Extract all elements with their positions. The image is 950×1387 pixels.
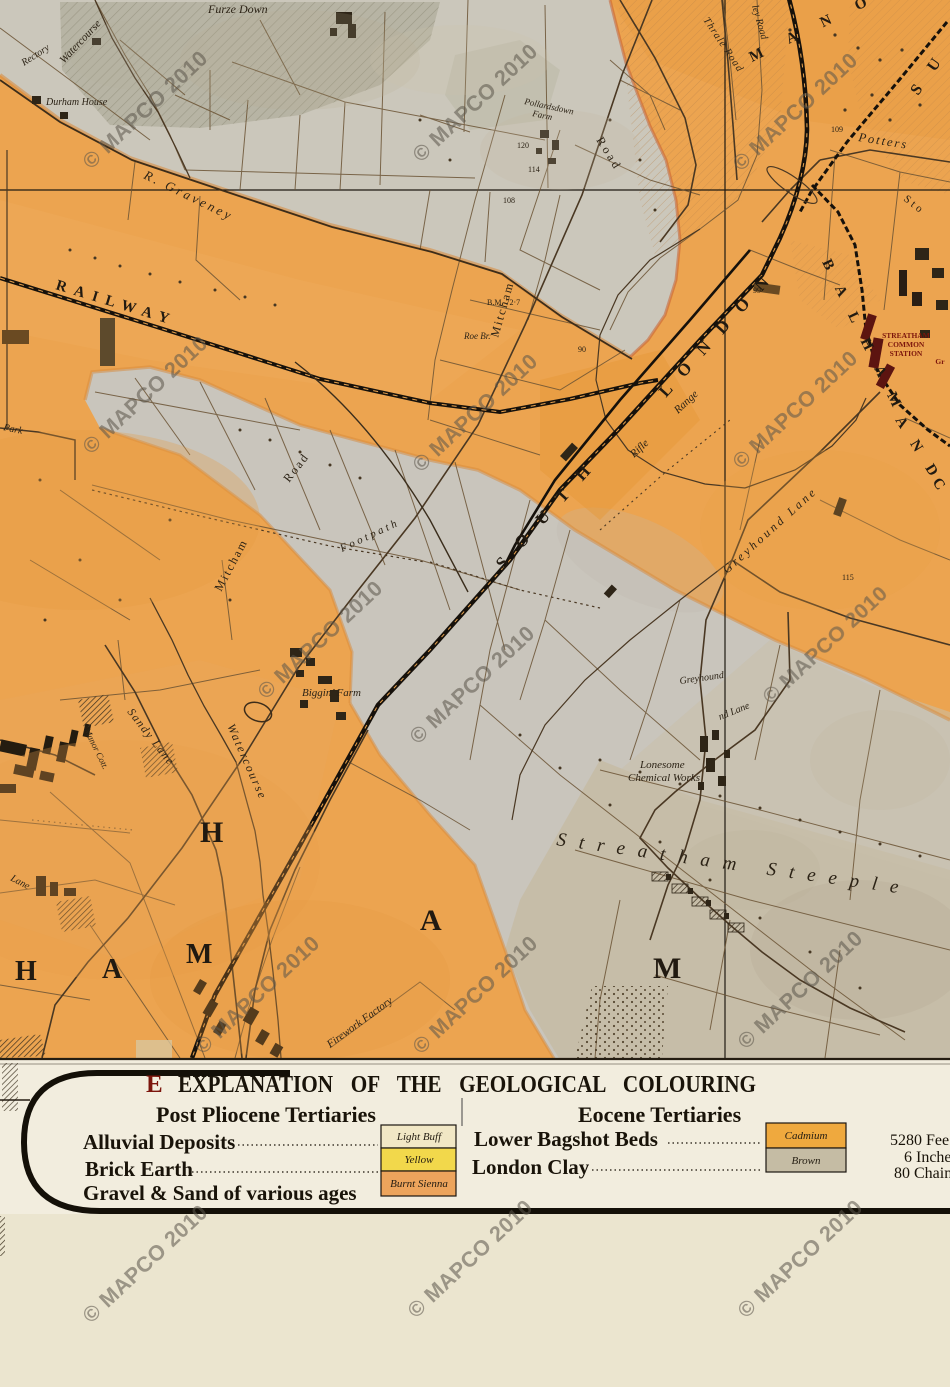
svg-text:Alluvial Deposits: Alluvial Deposits: [83, 1130, 235, 1154]
svg-text:Brown: Brown: [792, 1155, 821, 1167]
svg-text:H: H: [200, 816, 223, 849]
svg-text:EXPLANATION OF THE GEOLOGICAL: EXPLANATION OF THE GEOLOGICAL COLOURING: [178, 1072, 756, 1098]
svg-text:Post Pliocene Tertiaries: Post Pliocene Tertiaries: [156, 1102, 376, 1127]
svg-text:80 Chain: 80 Chain: [894, 1165, 950, 1182]
svg-text:STREATHAM: STREATHAM: [882, 331, 930, 340]
svg-text:Burnt Sienna: Burnt Sienna: [390, 1178, 448, 1190]
svg-text:Durham House: Durham House: [45, 97, 108, 108]
svg-text:Eocene Tertiaries: Eocene Tertiaries: [578, 1102, 742, 1127]
svg-text:Biggin’ Farm: Biggin’ Farm: [302, 687, 361, 699]
svg-text:E: E: [146, 1071, 163, 1098]
svg-text:6 Inche: 6 Inche: [904, 1149, 950, 1166]
svg-text:M: M: [186, 939, 212, 970]
svg-text:109: 109: [831, 125, 843, 134]
svg-text:Light Buff: Light Buff: [396, 1131, 443, 1143]
svg-text:Lower Bagshot Beds: Lower Bagshot Beds: [474, 1127, 658, 1151]
svg-text:Brick Earth: Brick Earth: [85, 1157, 193, 1181]
svg-text:108: 108: [503, 196, 515, 205]
svg-text:Yellow: Yellow: [405, 1154, 435, 1166]
svg-text:Gr: Gr: [935, 357, 945, 366]
svg-text:London Clay: London Clay: [472, 1155, 590, 1179]
svg-text:90: 90: [578, 345, 586, 354]
svg-text:H: H: [15, 956, 37, 987]
svg-text:Chemical Works: Chemical Works: [628, 772, 700, 784]
svg-text:115: 115: [842, 573, 854, 582]
svg-text:120: 120: [517, 141, 529, 150]
svg-text:A: A: [102, 954, 123, 985]
svg-text:A: A: [420, 904, 442, 937]
svg-text:Cadmium: Cadmium: [785, 1130, 828, 1142]
svg-text:COMMON: COMMON: [888, 340, 925, 349]
svg-text:114: 114: [528, 165, 540, 174]
svg-text:Lonesome: Lonesome: [639, 759, 685, 771]
svg-text:M: M: [653, 952, 681, 985]
svg-text:STATION: STATION: [890, 349, 923, 358]
svg-text:5280 Fee: 5280 Fee: [890, 1132, 949, 1149]
svg-text:Roe Br.: Roe Br.: [463, 331, 491, 341]
svg-text:Furze Down: Furze Down: [207, 2, 268, 16]
svg-text:Gravel & Sand of various ages: Gravel & Sand of various ages: [83, 1181, 357, 1205]
